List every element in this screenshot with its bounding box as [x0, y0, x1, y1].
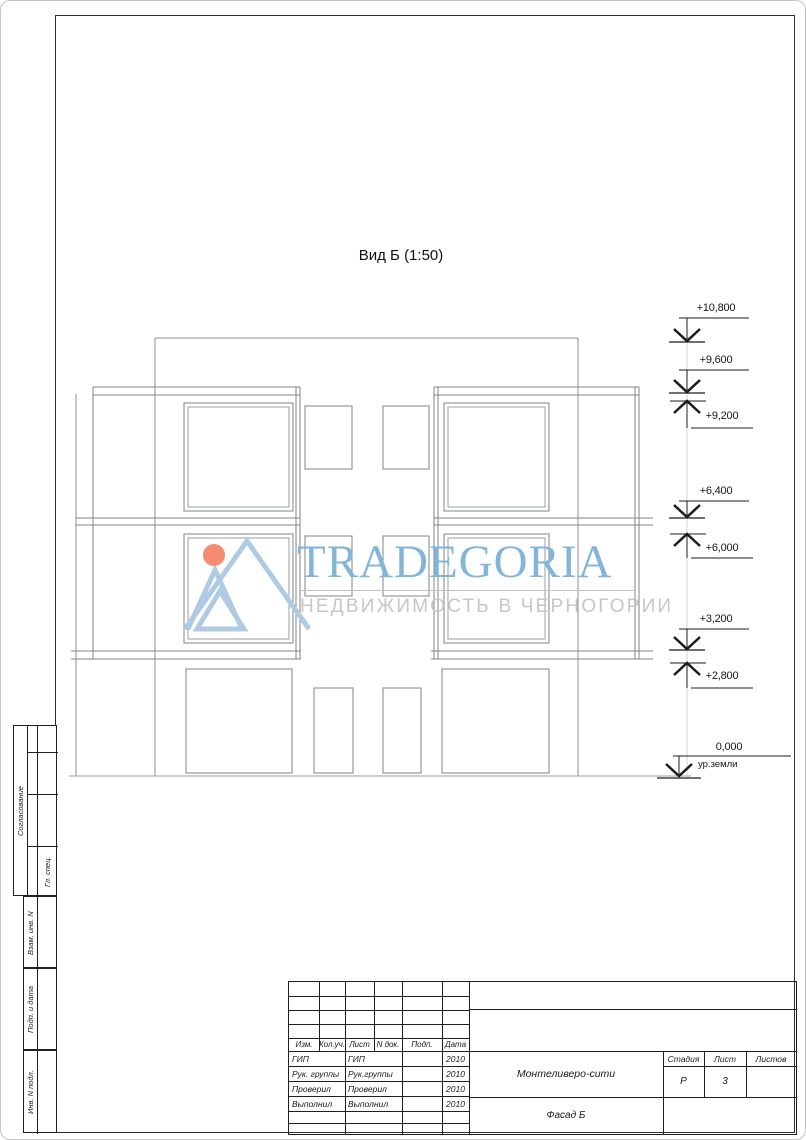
elevation-label: +10,800 — [685, 302, 747, 314]
elevation-label: +9,600 — [685, 354, 747, 366]
tb-name: Выполнил — [345, 1096, 402, 1111]
tb-name: Рук.группы — [345, 1066, 402, 1081]
watermark-mountains-icon — [179, 523, 314, 635]
approval-label: Согласование — [14, 726, 27, 897]
tb-date: 2010 — [442, 1081, 469, 1096]
tb-col-koluch: Кол.уч. — [319, 1038, 345, 1051]
elevation-label: +6,000 — [693, 542, 751, 554]
tb-col-ndok: N док. — [374, 1038, 402, 1051]
ground-level-label: ур.земли — [698, 759, 768, 770]
side-stamp-vzam: Взам. инв. N — [23, 896, 57, 968]
chief-specialist-label: Гл. спец. — [37, 846, 58, 897]
elevation-label: +9,200 — [693, 410, 751, 422]
tb-role: Рук. группы — [289, 1066, 345, 1081]
tb-name: ГИП — [345, 1051, 402, 1066]
tb-date: 2010 — [442, 1066, 469, 1081]
drawing-sheet: Вид Б (1:50) — [0, 0, 806, 1140]
tb-sheet-label: Лист — [704, 1051, 746, 1066]
side-stamp-inv: Инв. N подл. — [23, 1050, 57, 1133]
vzam-label: Взам. инв. N — [24, 897, 37, 969]
tb-name: Проверил — [345, 1081, 402, 1096]
tb-col-data: Дата — [442, 1038, 469, 1051]
elevation-label: 0,000 — [701, 741, 757, 753]
watermark-sun-dot — [203, 544, 225, 566]
tb-col-podp: Подп. — [402, 1038, 442, 1051]
tb-col-list: Лист — [345, 1038, 374, 1051]
tb-stage-value: Р — [663, 1066, 704, 1097]
tb-role: ГИП — [289, 1051, 345, 1066]
tb-project-name: Монтеливеро-сити — [469, 1051, 663, 1097]
elevation-label: +6,400 — [685, 485, 747, 497]
title-block: Изм. Кол.уч. Лист N док. Подп. Дата ГИП … — [288, 981, 797, 1135]
podp-label: Подп. и дата — [24, 969, 37, 1051]
watermark-tagline: НЕДВИЖИМОСТЬ В ЧЕРНОГОРИИ — [300, 596, 640, 618]
tb-role: Выполнил — [289, 1096, 345, 1111]
tb-date: 2010 — [442, 1051, 469, 1066]
tb-sheet-title: Фасад Б — [469, 1097, 663, 1134]
elevation-label: +2,800 — [693, 670, 751, 682]
tb-date: 2010 — [442, 1096, 469, 1111]
tb-stage-label: Стадия — [663, 1051, 704, 1066]
side-stamp-approval: Согласование Гл. спец. — [13, 725, 57, 896]
elevation-label: +3,200 — [685, 613, 747, 625]
side-stamp-podp: Подп. и дата — [23, 968, 57, 1050]
tb-sheet-value: 3 — [704, 1066, 746, 1097]
tb-sheets-value — [746, 1066, 796, 1097]
watermark-divider — [299, 590, 635, 591]
tb-sheets-label: Листов — [746, 1051, 796, 1066]
inv-label: Инв. N подл. — [24, 1051, 37, 1134]
watermark-brand: TRADEGORIA — [297, 537, 642, 587]
tb-col-izm: Изм. — [289, 1038, 319, 1051]
tb-role: Проверил — [289, 1081, 345, 1096]
